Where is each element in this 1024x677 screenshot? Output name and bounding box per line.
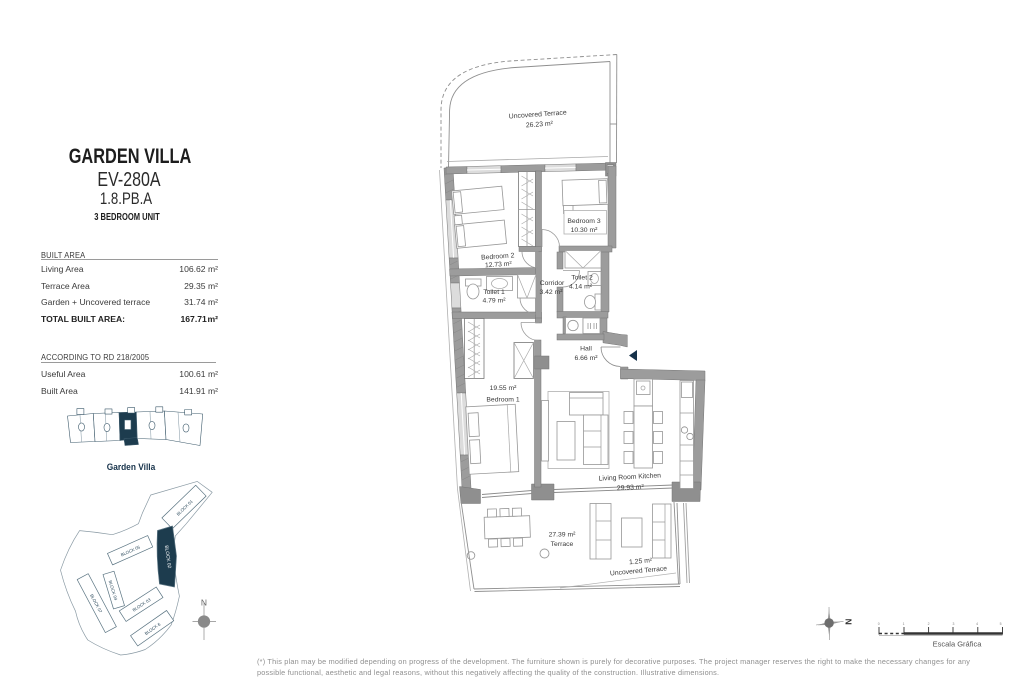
svg-text:10.30 m²: 10.30 m² [571, 227, 599, 234]
svg-text:N: N [201, 598, 207, 608]
svg-text:26.23 m²: 26.23 m² [526, 120, 554, 129]
svg-text:Bedroom 3: Bedroom 3 [567, 218, 600, 225]
svg-text:Corridor: Corridor [540, 280, 565, 287]
svg-text:3.42 m²: 3.42 m² [539, 289, 563, 296]
svg-text:Garden Villa: Garden Villa [107, 462, 157, 473]
svg-text:6.66 m²: 6.66 m² [574, 355, 598, 362]
svg-text:4.14 m²: 4.14 m² [569, 284, 593, 291]
svg-text:29.93 m²: 29.93 m² [617, 484, 645, 492]
svg-text:N: N [843, 619, 853, 625]
svg-text:Uncovered Terrace: Uncovered Terrace [509, 109, 568, 120]
svg-text:19.55 m²: 19.55 m² [490, 385, 518, 392]
svg-text:5: 5 [1000, 622, 1002, 626]
svg-text:Living Room Kitchen: Living Room Kitchen [599, 472, 662, 482]
svg-text:1.25 m²: 1.25 m² [629, 557, 653, 566]
svg-text:27.39 m²: 27.39 m² [549, 532, 577, 539]
svg-text:Terrace: Terrace [551, 541, 574, 548]
svg-text:Toilet 2: Toilet 2 [571, 275, 593, 282]
svg-text:4.79 m²: 4.79 m² [482, 298, 506, 305]
svg-text:Uncovered Terrace: Uncovered Terrace [610, 565, 668, 577]
svg-text:1: 1 [903, 622, 905, 626]
svg-text:Escala Gráfica: Escala Gráfica [933, 640, 983, 649]
svg-text:4: 4 [976, 622, 978, 626]
svg-text:Toilet 1: Toilet 1 [483, 289, 505, 296]
svg-text:2: 2 [928, 622, 930, 626]
svg-text:Hall: Hall [580, 346, 592, 353]
svg-text:Bedroom 1: Bedroom 1 [486, 397, 519, 404]
svg-text:3: 3 [953, 622, 955, 626]
svg-text:0: 0 [878, 622, 880, 626]
